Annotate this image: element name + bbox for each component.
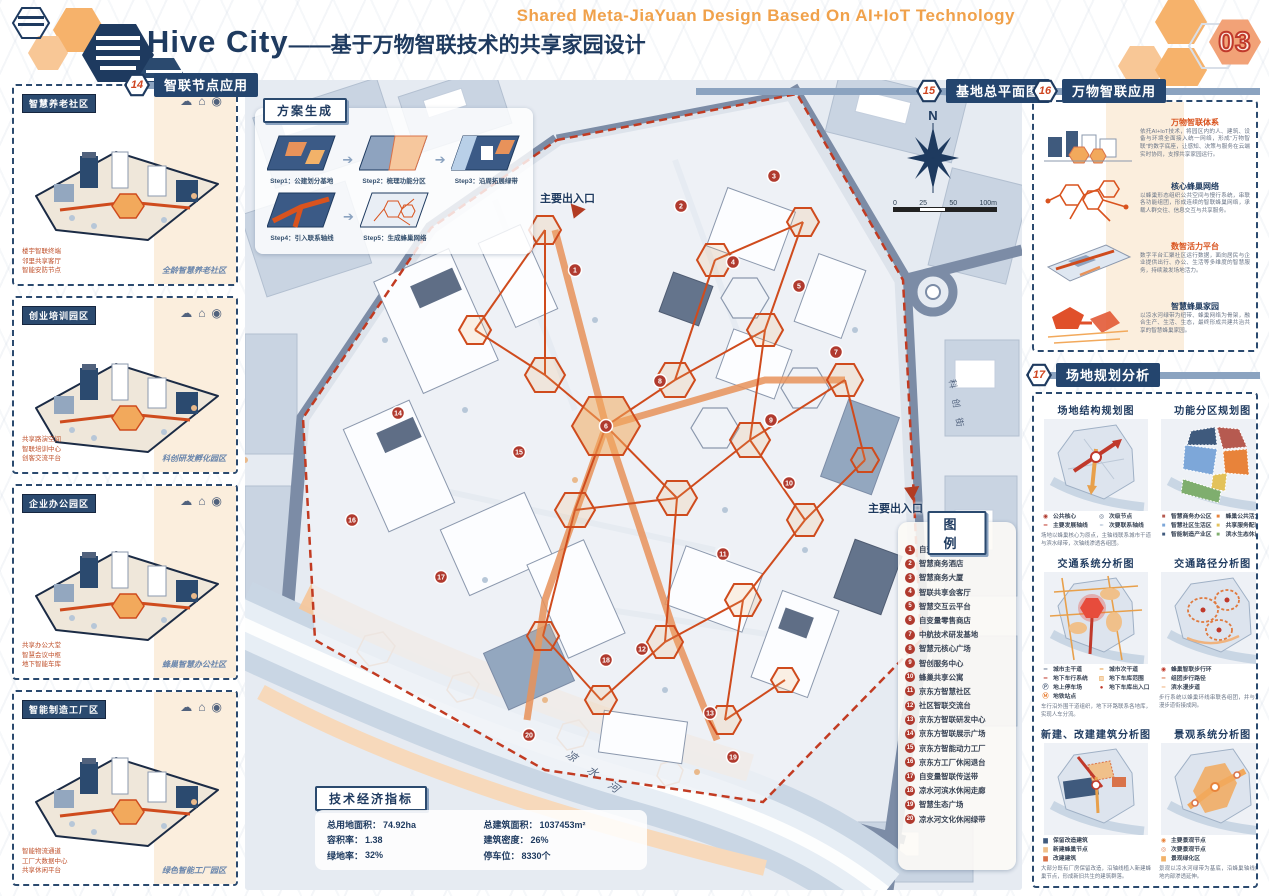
svg-text:18: 18 (602, 658, 610, 665)
legend-item-label: 京东方智联展示广场 (919, 728, 986, 739)
indicator-row: 绿地率： 32% (327, 848, 465, 863)
indicator-value: 32% (365, 850, 383, 860)
legend-item-number: 17 (905, 772, 915, 782)
legend-item: 15 京东方智能动力工厂 (905, 743, 1009, 754)
mini-legend-item: ━地下车行系统 (1041, 675, 1095, 684)
mini-legend-item: ■滨水生态休闲区 (1214, 531, 1258, 540)
scale-bar: 025 50100m (893, 200, 1013, 212)
svg-text:19: 19 (729, 755, 737, 762)
north-compass: N (903, 108, 963, 208)
left-panel-column: 智慧养老社区 ☁⌂◉ 楼宇智联终端 邻里共享客厅 (12, 84, 238, 888)
legend-item: 18 凉水河滨水休闲走廊 (905, 785, 1009, 796)
indicator-row: 容积率： 1.38 (327, 832, 465, 847)
indicators-box: 技术经济指标 总用地面积： 74.92ha 容积率： 1.38 绿地率： 32% (315, 788, 647, 872)
step-arrow: ➔ (343, 209, 354, 225)
legend-item: 7 中航技术研发基地 (905, 629, 1009, 640)
compass-rose-icon (905, 123, 961, 193)
legend-item: 4 智联共享会客厅 (905, 587, 1009, 598)
step-arrow: ➔ (435, 152, 446, 168)
section-15-hex: 15 (916, 78, 942, 104)
legend-item-number: 11 (905, 686, 915, 696)
svg-text:10: 10 (785, 481, 793, 488)
legend-item-label: 京东方工厂休闲退台 (919, 757, 986, 768)
legend-item: 10 蜂巢共享公寓 (905, 672, 1009, 683)
landscape-map (1161, 743, 1258, 835)
scheme-generation-box: 方案生成 Step1：公建划分基地 ➔ Step2：梳理功能分区 ➔ Step3… (255, 108, 533, 254)
scheme-step-5: Step5：生成蜂巢网络 (356, 191, 434, 242)
mini-legend-item: ━主要发展轴线 (1041, 522, 1095, 531)
indicators-title: 技术经济指标 (315, 786, 427, 811)
analysis-note: 步行系统以蜂巢环线串联各组团，并与滨水漫步道衔接成网。 (1159, 695, 1258, 710)
svg-text:6: 6 (604, 424, 608, 431)
legend-item-label: 中航技术研发基地 (919, 629, 978, 640)
legend-item: 19 智慧生态广场 (905, 799, 1009, 810)
iot-block-3: 数智活力平台数字平台汇聚社区运行数据，面向居民与企业提供出行、办公、生活等多维度… (1040, 228, 1250, 288)
section-header-17: 17 场地规划分析 (1026, 364, 1160, 386)
scheme-step-2: Step2：梳理功能分区 (355, 134, 432, 185)
indicator-value: 1037453m² (540, 820, 586, 830)
legend-item: 17 自变量智联传送带 (905, 771, 1009, 782)
analysis-traffic-system: 交通系统分析图 ━城市主干道━城市次干道━地下车行系统▧地下车库范围Ⓟ地上停车场… (1041, 555, 1151, 720)
poster-board: Shared Meta-JiaYuan Design Based On AI+I… (0, 0, 1269, 896)
legend-item: 20 凉水河文化休闲绿带 (905, 814, 1009, 825)
legend-item: 16 京东方工厂休闲退台 (905, 757, 1009, 768)
section-header-14: 14 智联节点应用 (124, 74, 258, 96)
legend-item-number: 20 (905, 814, 915, 824)
scale-bar-segments (893, 207, 997, 212)
application-panel: 企业办公园区 ☁⌂◉ 共享办公大堂 智慧会议中枢 (12, 484, 238, 680)
svg-text:4: 4 (731, 260, 735, 267)
legend-item-number: 3 (905, 573, 915, 583)
scheme-steps-row1: Step1：公建划分基地 ➔ Step2：梳理功能分区 ➔ Step3：沿周拓展… (263, 134, 525, 185)
legend-item-number: 13 (905, 715, 915, 725)
indicator-label: 停车位： (483, 849, 519, 862)
mini-legend-item: ◉公共核心 (1041, 513, 1095, 522)
svg-text:13: 13 (706, 711, 714, 718)
north-label: N (903, 108, 963, 123)
panel-label: 企业办公园区 (22, 494, 96, 513)
legend-item-label: 自变量零售商店 (919, 615, 971, 626)
legend-item-label: 智慧生态广场 (919, 799, 963, 810)
traffic-system-map (1044, 572, 1148, 664)
section-16-hex: 16 (1032, 78, 1058, 104)
hive-home-diagram (1040, 291, 1136, 345)
panel-caption: 科创研发孵化园区 (162, 453, 226, 464)
section-16-title: 万物智联应用 (1062, 79, 1166, 103)
indicator-label: 建筑密度： (483, 833, 528, 846)
title-cn: ——基于万物智联技术的共享家园设计 (289, 34, 646, 57)
legend-item: 6 自变量零售商店 (905, 615, 1009, 626)
scheme-steps-row2: Step4：引入联系轴线 ➔ Step5：生成蜂巢网络 (263, 191, 525, 242)
section-14-title: 智联节点应用 (154, 73, 258, 97)
iot-application-panel: 万物智联体系依托AI+IoT技术，将园区内的人、建筑、设备与环境全面接入统一网络… (1032, 100, 1258, 352)
legend-item-label: 智慧商务酒店 (919, 558, 963, 569)
iot-icons: ☁⌂◉ (180, 700, 228, 714)
legend-item-number: 7 (905, 630, 915, 640)
svg-text:12: 12 (638, 647, 646, 654)
indicator-value: 1.38 (365, 835, 383, 845)
scheme-step-3: Step3：沿周拓展绿带 (448, 134, 525, 185)
mini-legend-item: Ⓜ地铁站点 (1041, 693, 1095, 702)
panel-label: 创业培训园区 (22, 306, 96, 325)
legend-item-number: 8 (905, 644, 915, 654)
svg-text:1: 1 (573, 268, 577, 275)
indicator-label: 绿地率： (327, 849, 363, 862)
svg-text:17: 17 (437, 575, 445, 582)
legend-item-label: 智慧交互云平台 (919, 601, 971, 612)
indicator-value: 26% (531, 835, 549, 845)
legend-title: 图例 (928, 511, 987, 555)
panel-caption: 全龄智慧养老社区 (162, 265, 226, 276)
legend-item-number: 10 (905, 672, 915, 682)
mini-legend-item: ▧地下车库范围 (1097, 675, 1151, 684)
legend-item-label: 智慧商务大厦 (919, 572, 963, 583)
mini-legend-item: ■智慧商务办公区 (1159, 513, 1212, 522)
mini-legend-item: ▆改建建筑 (1041, 855, 1151, 864)
legend-item-number: 9 (905, 658, 915, 668)
callout-labels: 楼宇智联终端 邻里共享客厅 智能安防节点 (22, 247, 61, 276)
analysis-note: 景观以凉水河绿带为基底，沿蜂巢轴线向场地内部渗透延伸。 (1159, 866, 1258, 881)
section-17-hex: 17 (1026, 362, 1052, 388)
mini-legend-item: ━城市次干道 (1097, 666, 1151, 675)
legend-item-label: 京东方智联研发中心 (919, 714, 986, 725)
legend-item: 11 京东方智慧社区 (905, 686, 1009, 697)
legend-item-number: 18 (905, 786, 915, 796)
scheme-title: 方案生成 (263, 98, 347, 123)
indicator-row: 总建筑面积： 1037453m² (483, 817, 635, 832)
legend-item-number: 14 (905, 729, 915, 739)
mini-legend-item: Ⓟ地上停车场 (1041, 684, 1095, 693)
callout-labels: 共享办公大堂 智慧会议中枢 地下智能车库 (22, 641, 61, 670)
mini-legend-item: ●地下车库出入口 (1097, 684, 1151, 693)
legend-item: 8 智慧元核心广场 (905, 643, 1009, 654)
legend-item: 12 社区智联交流台 (905, 700, 1009, 711)
application-panel: 智能制造工厂区 ☁⌂◉ 智能物流通道 工厂大数据中心 (12, 690, 238, 886)
hive-city-logo (4, 2, 254, 82)
axonometric-illustration (24, 522, 228, 650)
legend-item: 2 智慧商务酒店 (905, 558, 1009, 569)
iot-block-2: 核心蜂巢网络以蜂巢形态组织公共空间与慢行系统，串联各功能组团，形成连续的智联蜂巢… (1040, 168, 1250, 228)
analysis-note: 车行沿外围干道组织，地下环路联系各地库，实现人车分流。 (1041, 704, 1151, 719)
indicator-row: 停车位： 8330个 (483, 848, 635, 863)
iot-block-4: 智慧蜂巢家园以凉水河绿带为纽带、蜂巢网络为骨架，融合生产、生活、生态，最终形成共… (1040, 288, 1250, 348)
svg-text:5: 5 (797, 284, 801, 291)
indicator-value: 74.92ha (383, 820, 416, 830)
iot-buildings-diagram (1040, 111, 1136, 165)
panel-caption: 蜂巢智慧办公社区 (162, 659, 226, 670)
legend-item-number: 2 (905, 559, 915, 569)
indicator-label: 总建筑面积： (483, 818, 537, 831)
new-renovated-map (1044, 743, 1148, 835)
legend-item-label: 社区智联交流台 (919, 700, 971, 711)
mini-legend-item: ◎次级节点 (1097, 513, 1151, 522)
mini-legend-item: ┅次要联系轴线 (1097, 522, 1151, 531)
svg-text:8: 8 (658, 379, 662, 386)
svg-text:15: 15 (515, 450, 523, 457)
axonometric-illustration (24, 728, 228, 856)
callout-labels: 共享路演空间 智联培训中心 创客交流平台 (22, 435, 61, 464)
hive-network-diagram (1040, 171, 1136, 225)
indicator-value: 8330个 (522, 849, 551, 862)
legend-item-number: 1 (905, 545, 915, 555)
legend-item-number: 5 (905, 601, 915, 611)
analysis-note: 场地以蜂巢核心为原点，主轴线联系城市干道与滨水绿带，次轴线渗透各组团。 (1041, 533, 1151, 548)
iot-icons: ☁⌂◉ (180, 494, 228, 508)
header-subtitle-en: Shared Meta-JiaYuan Design Based On AI+I… (500, 6, 1015, 26)
axonometric-illustration (24, 122, 228, 250)
legend-item: 3 智慧商务大厦 (905, 572, 1009, 583)
mini-legend-item: ▆新建蜂巢节点 (1041, 846, 1151, 855)
mini-legend-item: ■智慧社区生活区 (1159, 522, 1212, 531)
svg-text:20: 20 (525, 733, 533, 740)
legend-item: 5 智慧交互云平台 (905, 601, 1009, 612)
analysis-note: 大部分既有厂房保留改造，沿轴线植入新建蜂巢节点，形成新旧共生的建筑群落。 (1041, 866, 1151, 881)
mini-legend-item: ◉主要景观节点 (1159, 837, 1258, 846)
analysis-landscape: 景观系统分析图 ◉主要景观节点◎次要景观节点▆景观绿化区 景观以凉水河绿带为基底… (1159, 726, 1258, 882)
legend-item: 13 京东方智联研发中心 (905, 714, 1009, 725)
application-panel: 创业培训园区 ☁⌂◉ 共享路演空间 智联培训中心 (12, 296, 238, 474)
svg-text:14: 14 (394, 411, 402, 418)
mini-legend-item: ▆景观绿化区 (1159, 855, 1258, 864)
map-legend: 图例 1 自变量研发基地 2 智慧商务酒店 3 智慧商务大厦 (898, 522, 1016, 870)
mini-legend-item: ▆保留改造建筑 (1041, 837, 1151, 846)
analysis-structure: 场地结构规划图 ◉公共核心◎次级节点━主要发展轴线┅次要联系轴线 场地以蜂巢核心… (1041, 402, 1151, 549)
structure-map (1044, 419, 1148, 511)
legend-item-label: 蜂巢共享公寓 (919, 672, 963, 683)
indicator-row: 总用地面积： 74.92ha (327, 817, 465, 832)
application-panel: 智慧养老社区 ☁⌂◉ 楼宇智联终端 邻里共享客厅 (12, 84, 238, 286)
legend-item-label: 凉水河文化休闲绿带 (919, 814, 986, 825)
svg-text:3: 3 (772, 174, 776, 181)
legend-item-label: 自变量智联传送带 (919, 771, 978, 782)
panel-caption: 绿色智能工厂园区 (162, 865, 226, 876)
mini-legend-item: ◎次要景观节点 (1159, 846, 1258, 855)
svg-text:11: 11 (719, 552, 727, 559)
analysis-new-renovated: 新建、改建建筑分析图 ▆保留改造建筑▆新建蜂巢节点▆改建建筑 大部分既有厂房保留… (1041, 726, 1151, 882)
legend-item-label: 智联共享会客厅 (919, 587, 971, 598)
site-analysis-panel: 场地结构规划图 ◉公共核心◎次级节点━主要发展轴线┅次要联系轴线 场地以蜂巢核心… (1032, 392, 1258, 888)
legend-item-number: 12 (905, 701, 915, 711)
indicator-label: 容积率： (327, 833, 363, 846)
analysis-function: 功能分区规划图 ■智慧商务办公区■蜂巢公共活力区■智慧社区生活区■共享服务配套区… (1159, 402, 1258, 549)
section-17-title: 场地规划分析 (1056, 363, 1160, 387)
mini-legend-item: ━滨水漫步道 (1159, 684, 1258, 693)
step-arrow: ➔ (342, 152, 353, 168)
legend-item-label: 京东方智能动力工厂 (919, 743, 986, 754)
legend-item-label: 智慧元核心广场 (919, 643, 971, 654)
analysis-traffic-path: 交通路径分析图 ◉蜂巢智联步行环━组团步行路径━滨水漫步道 步行系统以蜂巢环线串… (1159, 555, 1258, 720)
callout-labels: 智能物流通道 工厂大数据中心 共享休闲平台 (22, 847, 68, 876)
digital-platform-diagram (1040, 231, 1136, 285)
legend-item: 9 智创服务中心 (905, 658, 1009, 669)
legend-item-label: 智创服务中心 (919, 658, 963, 669)
legend-item: 14 京东方智联展示广场 (905, 728, 1009, 739)
entrance-label-right: 主要出入口 (868, 500, 923, 516)
legend-list: 1 自变量研发基地 2 智慧商务酒店 3 智慧商务大厦 4 智联共享会客厅 (905, 544, 1009, 825)
svg-text:16: 16 (348, 518, 356, 525)
mini-legend-item: ■智能制造产业区 (1159, 531, 1212, 540)
section-header-16: 16 万物智联应用 (1032, 80, 1166, 102)
mini-legend-item: ━城市主干道 (1041, 666, 1095, 675)
header: Shared Meta-JiaYuan Design Based On AI+I… (0, 0, 1269, 78)
svg-text:2: 2 (679, 204, 683, 211)
legend-item-number: 15 (905, 743, 915, 753)
panel-label: 智能制造工厂区 (22, 700, 106, 719)
indicators-grid: 总用地面积： 74.92ha 容积率： 1.38 绿地率： 32% 总建筑面积：… (315, 810, 647, 870)
svg-text:7: 7 (834, 350, 838, 357)
legend-item-number: 16 (905, 757, 915, 767)
scheme-step-1: Step1：公建划分基地 (263, 134, 340, 185)
traffic-path-map (1161, 572, 1258, 664)
mini-legend-item: ━组团步行路径 (1159, 675, 1258, 684)
legend-item-number: 19 (905, 800, 915, 810)
legend-item-number: 6 (905, 615, 915, 625)
section-14-hex: 14 (124, 72, 150, 98)
iot-block-1: 万物智联体系依托AI+IoT技术，将园区内的人、建筑、设备与环境全面接入统一网络… (1040, 108, 1250, 168)
section-header-15: 15 基地总平面图 (916, 80, 1050, 102)
entrance-label-top: 主要出入口 (540, 190, 595, 206)
indicator-row: 建筑密度： 26% (483, 832, 635, 847)
mini-legend-item: ■共享服务配套区 (1214, 522, 1258, 531)
mini-legend-item: ■蜂巢公共活力区 (1214, 513, 1258, 522)
scale-ticks: 025 50100m (893, 200, 997, 207)
legend-item-label: 凉水河滨水休闲走廊 (919, 785, 986, 796)
indicator-label: 总用地面积： (327, 818, 381, 831)
panel-label: 智慧养老社区 (22, 94, 96, 113)
svg-text:9: 9 (769, 418, 773, 425)
scheme-step-4: Step4：引入联系轴线 (263, 191, 341, 242)
function-zoning-map (1161, 419, 1258, 511)
mini-legend-item: ◉蜂巢智联步行环 (1159, 666, 1258, 675)
legend-item-label: 京东方智慧社区 (919, 686, 971, 697)
legend-item-number: 4 (905, 587, 915, 597)
iot-icons: ☁⌂◉ (180, 306, 228, 320)
